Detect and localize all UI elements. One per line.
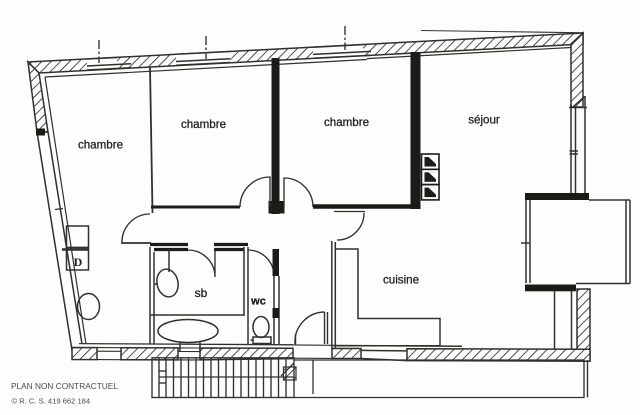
svg-text:D: D — [74, 255, 83, 269]
svg-text:séjour: séjour — [468, 114, 500, 127]
svg-text:cuisine: cuisine — [383, 274, 419, 287]
svg-text:chambre: chambre — [181, 118, 226, 131]
svg-text:chambre: chambre — [324, 116, 369, 129]
svg-text:chambre: chambre — [78, 139, 123, 152]
svg-text:wc: wc — [250, 296, 266, 308]
svg-text:sb: sb — [195, 286, 208, 300]
svg-text:PLAN NON CONTRACTUEL: PLAN NON CONTRACTUEL — [11, 381, 118, 391]
svg-text:© R. C. S. 419 662 184: © R. C. S. 419 662 184 — [12, 397, 91, 406]
